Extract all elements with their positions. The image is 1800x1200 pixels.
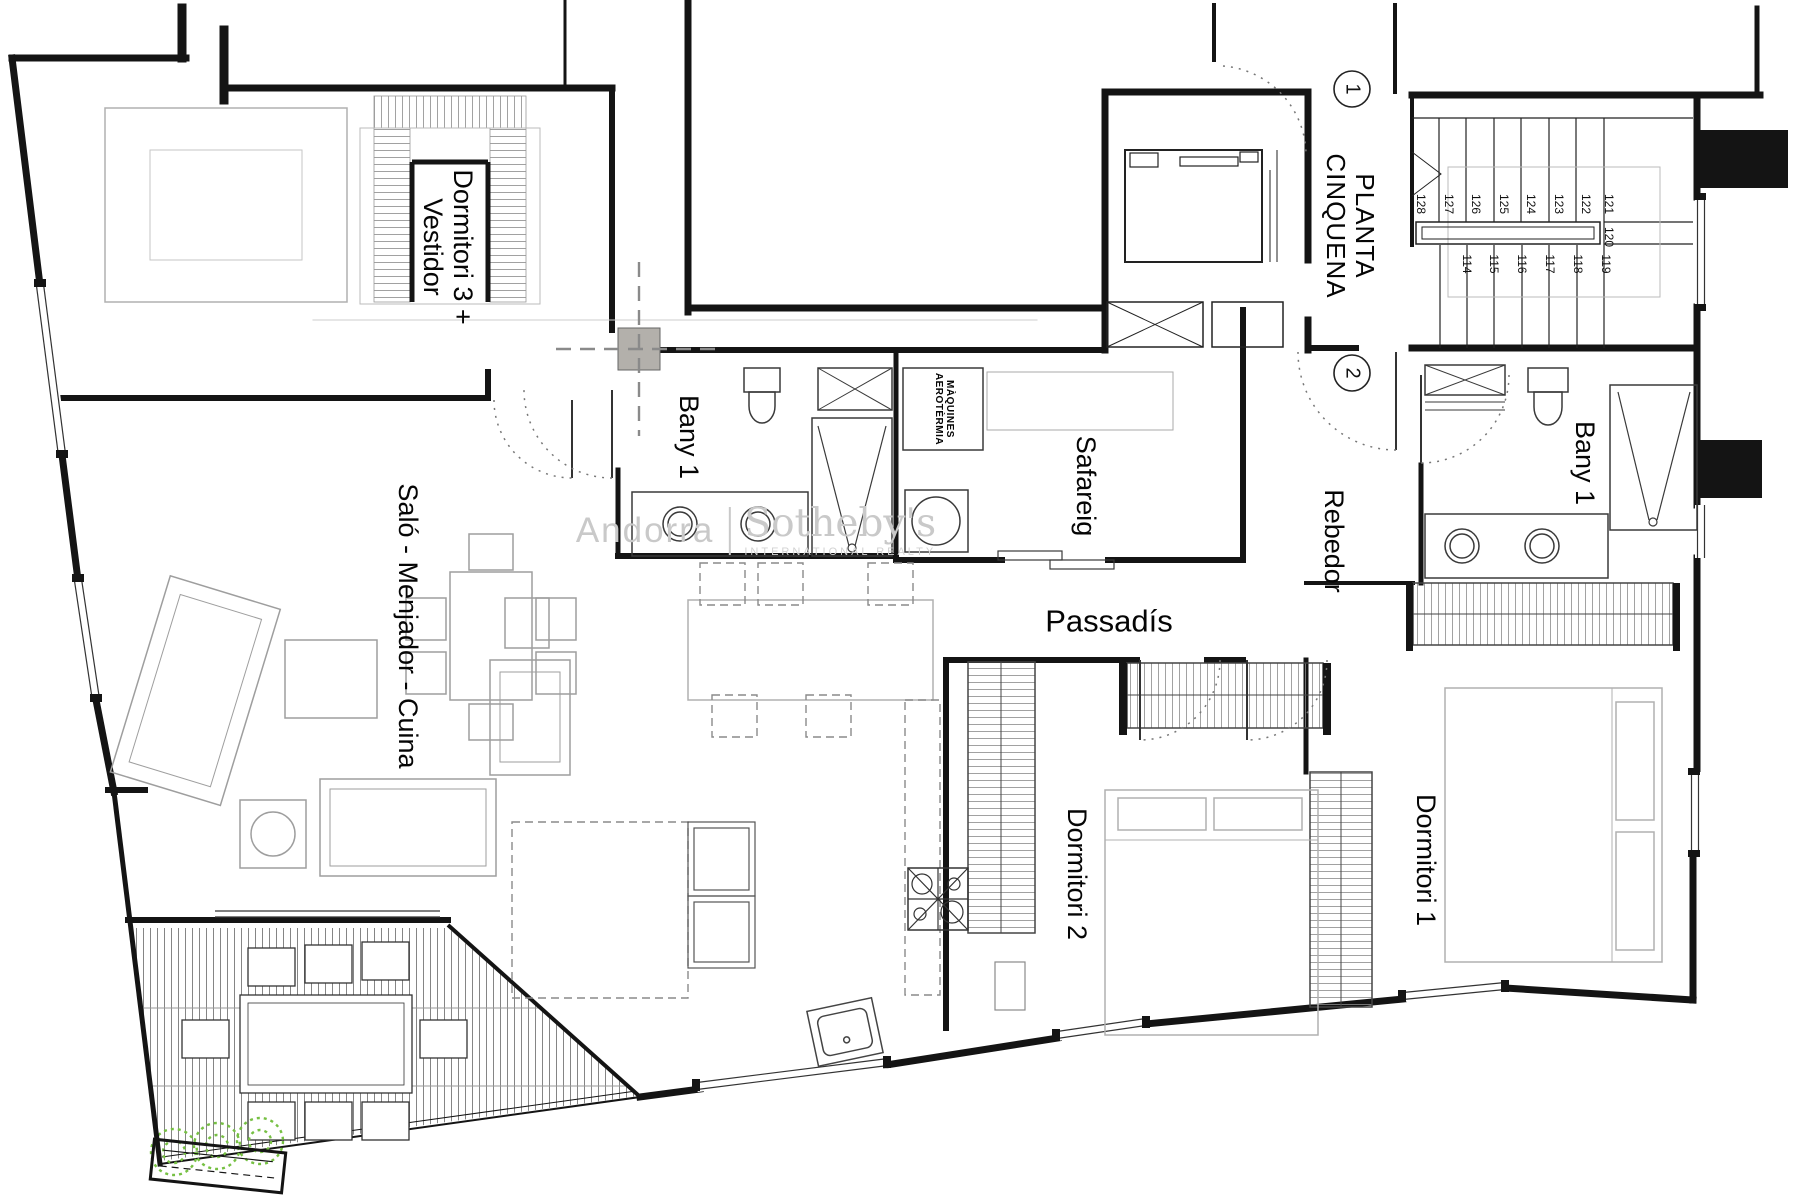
stair-step-number: 119 [1599, 254, 1613, 273]
stair-step-number: 125 [1497, 194, 1511, 214]
hob-icon [908, 868, 968, 930]
watermark: Andorra Sotheby's INTERNATIONAL REALTY [576, 504, 936, 558]
stair-step-number: 115 [1487, 254, 1501, 273]
room-label-dormitori-2: Dormitori 2 [1062, 808, 1092, 940]
watermark-sothebys: Sotheby's [744, 504, 936, 543]
floor-title: PLANTA CINQUENA [1321, 153, 1379, 298]
section-marker-2: 2 [1341, 367, 1364, 378]
living-room-furniture [110, 534, 576, 876]
watermark-divider [728, 507, 730, 555]
stair-step-number: 116 [1515, 254, 1529, 273]
room-label-maquines-aerotermia: MÀQUINES AEROTÈRMIA [933, 373, 955, 445]
room-label-passadis: Passadís [1045, 605, 1173, 640]
room-label-bany-1-right: Bany 1 [1570, 421, 1600, 505]
room-label-salo-menjador-cuina: Saló - Menjador - Cuina [393, 483, 423, 768]
floor-plan-drawing [0, 0, 1800, 1200]
stair-step-number: 114 [1460, 254, 1474, 273]
room-label-dormitori-3-vestidor: Dormitori 3 + Vestidor [418, 169, 478, 324]
stair-step-number: 123 [1552, 194, 1566, 214]
watermark-subtitle: INTERNATIONAL REALTY [744, 546, 936, 558]
stair-step-number: 121 [1602, 194, 1616, 214]
stair-step-number: 128 [1414, 194, 1428, 214]
stair-step-number: 124 [1524, 194, 1538, 214]
bathroom-1-right-fixtures [1425, 365, 1697, 578]
room-label-bany-1-left: Bany 1 [674, 395, 704, 479]
room-label-rebedor: Rebedor [1319, 489, 1349, 593]
stair-step-number: 120 [1602, 227, 1616, 247]
room-label-dormitori-1: Dormitori 1 [1411, 794, 1441, 926]
stair-step-number: 122 [1579, 194, 1593, 214]
stairs [1412, 118, 1693, 348]
stair-step-number: 117 [1543, 254, 1557, 273]
stair-step-number: 126 [1469, 194, 1483, 214]
elevator [1107, 150, 1283, 347]
stair-step-number: 118 [1571, 254, 1585, 273]
kitchen [512, 563, 968, 1066]
stair-step-number: 127 [1442, 194, 1456, 214]
sink-icon [807, 998, 883, 1066]
watermark-andorra: Andorra [576, 511, 715, 551]
floor-plan-canvas: Dormitori 3 + Vestidor Bany 1 Safareig P… [0, 0, 1800, 1200]
room-label-safareig: Safareig [1071, 436, 1101, 537]
section-marker-1: 1 [1341, 83, 1364, 94]
